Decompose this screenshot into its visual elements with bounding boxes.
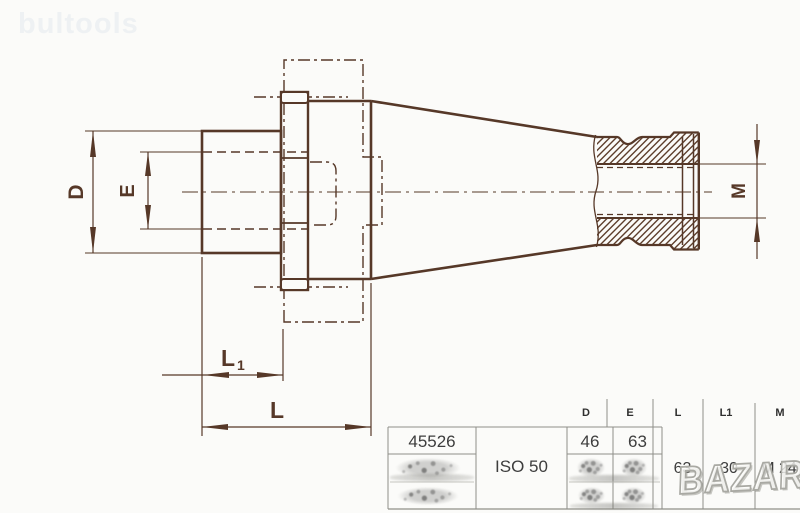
smudge-stamp xyxy=(621,487,646,504)
table-cell-order-number: 45526 xyxy=(388,432,476,452)
phantom-cutter-outline xyxy=(254,60,382,322)
table-header-l: L xyxy=(663,407,693,419)
dim-m-label: M xyxy=(729,183,750,199)
dim-l1-sub: 1 xyxy=(237,357,245,373)
smudge-smear xyxy=(570,503,658,509)
threaded-bore-section xyxy=(594,133,699,250)
dim-l1-label: L xyxy=(221,345,235,371)
smudge-smear xyxy=(390,474,474,481)
mounting-flange xyxy=(281,92,371,290)
table-header-m: M xyxy=(765,407,795,419)
table-cell-e-value: 63 xyxy=(613,432,662,452)
table-header-d: D xyxy=(571,407,601,419)
dimension-l1: L 1 xyxy=(162,257,283,436)
catalog-page: bultools xyxy=(0,0,800,513)
dim-e-label: E xyxy=(117,184,139,197)
smudge-stamp xyxy=(578,487,605,504)
table-header-l1: L1 xyxy=(711,407,741,419)
smudge-stamp xyxy=(398,487,458,505)
table-cell-taper: ISO 50 xyxy=(476,457,567,477)
bazar-watermark: BAZAR xyxy=(677,450,796,510)
dim-d-label: D xyxy=(65,184,88,199)
table-cell-d-value: 46 xyxy=(567,432,613,452)
dim-l-label: L xyxy=(270,397,284,423)
smudge-smear xyxy=(569,475,659,482)
table-header-e: E xyxy=(615,407,645,419)
taper-cone xyxy=(371,101,597,279)
dimension-e: E xyxy=(117,152,208,229)
